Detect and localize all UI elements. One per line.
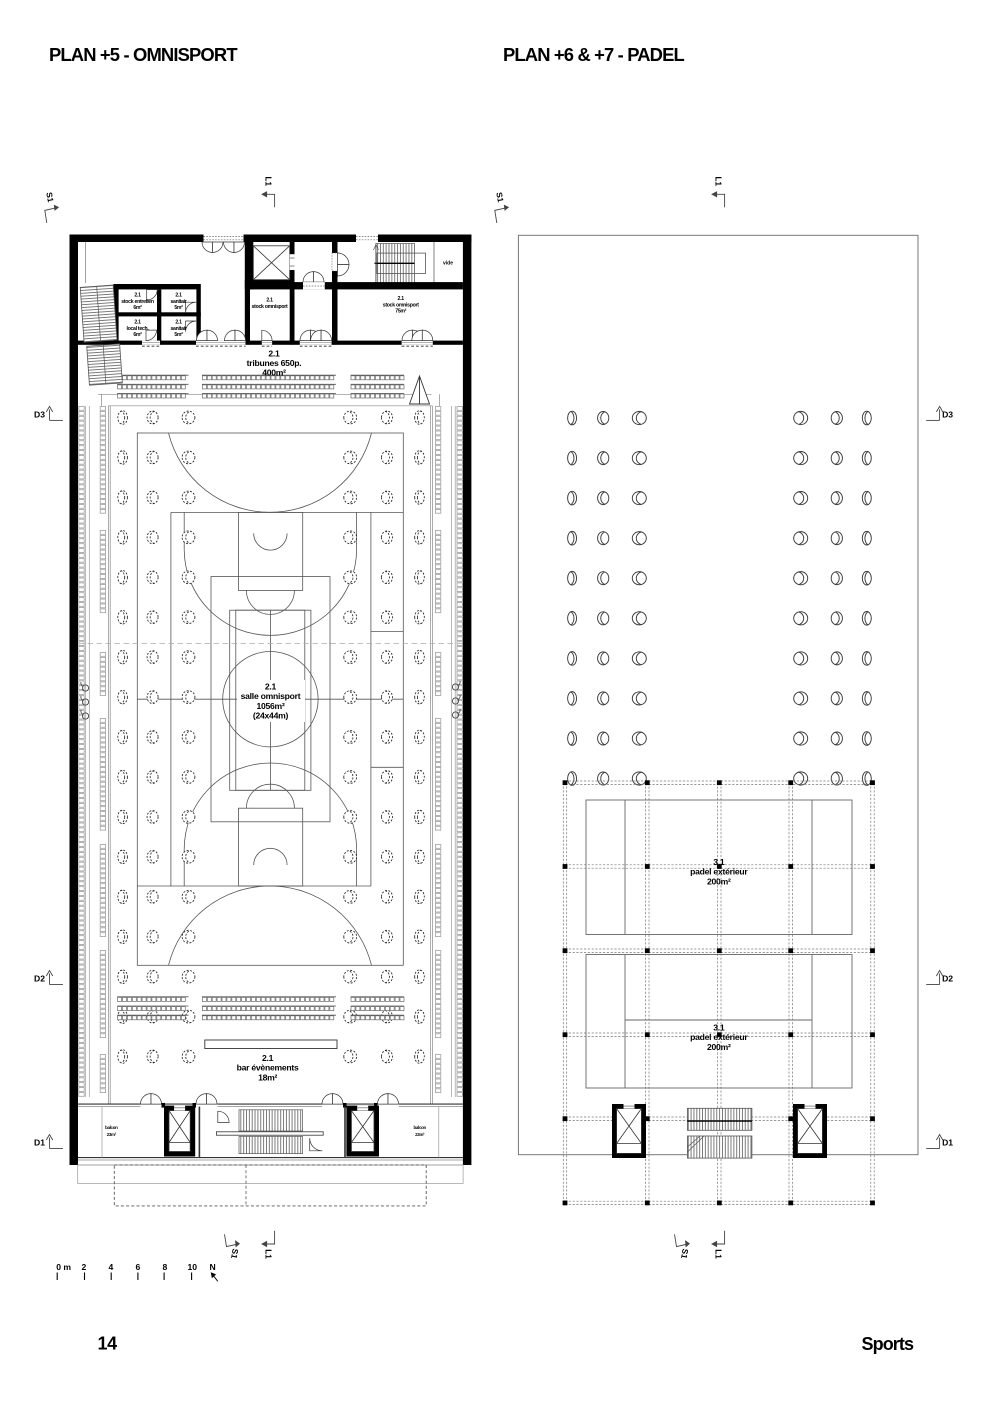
- svg-text:2.1: 2.1: [262, 1053, 274, 1063]
- svg-text:sanitair: sanitair: [170, 299, 186, 305]
- svg-text:balcon: balcon: [105, 1125, 118, 1130]
- svg-text:padel extérieur: padel extérieur: [690, 1032, 748, 1042]
- svg-text:padel extérieur: padel extérieur: [690, 867, 748, 877]
- svg-text:N: N: [210, 1262, 216, 1272]
- svg-text:6: 6: [136, 1262, 141, 1272]
- svg-text:5m²: 5m²: [174, 332, 183, 338]
- svg-text:2.1: 2.1: [175, 293, 182, 299]
- svg-text:sanitair: sanitair: [170, 326, 186, 332]
- svg-text:1056m²: 1056m²: [256, 701, 285, 711]
- svg-text:14: 14: [98, 1334, 118, 1354]
- svg-text:8: 8: [163, 1262, 168, 1272]
- svg-text:PLAN +5 - OMNISPORT: PLAN +5 - OMNISPORT: [49, 44, 238, 65]
- svg-text:D2: D2: [942, 974, 953, 984]
- svg-text:2.1: 2.1: [265, 681, 277, 691]
- svg-text:2.1: 2.1: [268, 349, 280, 359]
- svg-text:18m²: 18m²: [258, 1072, 277, 1082]
- svg-text:23m²: 23m²: [415, 1132, 425, 1137]
- svg-text:D1: D1: [34, 1138, 45, 1148]
- svg-text:L1: L1: [263, 1249, 272, 1259]
- svg-text:3.1: 3.1: [713, 857, 725, 867]
- svg-text:2.1: 2.1: [134, 293, 141, 299]
- svg-text:L1: L1: [713, 177, 722, 187]
- svg-text:vide: vide: [443, 261, 453, 267]
- svg-text:2.1: 2.1: [266, 298, 273, 304]
- svg-text:400m²: 400m²: [262, 368, 286, 378]
- svg-text:4: 4: [109, 1262, 114, 1272]
- svg-text:S1: S1: [229, 1248, 240, 1260]
- svg-text:2.1: 2.1: [175, 320, 182, 326]
- svg-text:(24x44m): (24x44m): [253, 711, 289, 721]
- svg-text:S1: S1: [679, 1248, 690, 1260]
- svg-text:2.1: 2.1: [134, 320, 141, 326]
- svg-text:tribunes 650p.: tribunes 650p.: [247, 358, 302, 368]
- svg-text:salle omnisport: salle omnisport: [241, 691, 301, 701]
- svg-text:stock omnisport: stock omnisport: [252, 304, 288, 310]
- svg-text:2.1: 2.1: [398, 296, 405, 302]
- svg-text:2: 2: [82, 1262, 87, 1272]
- svg-text:6m²: 6m²: [133, 305, 142, 311]
- svg-text:L1: L1: [713, 1249, 722, 1259]
- svg-text:6m²: 6m²: [133, 332, 142, 338]
- svg-text:balcon: balcon: [414, 1125, 427, 1130]
- svg-text:D3: D3: [942, 409, 953, 419]
- svg-text:200m²: 200m²: [707, 876, 731, 886]
- svg-text:stock entretien: stock entretien: [121, 299, 154, 305]
- svg-text:D2: D2: [34, 974, 45, 984]
- svg-text:0 m: 0 m: [56, 1262, 71, 1272]
- svg-text:Sports: Sports: [862, 1334, 914, 1354]
- svg-text:D3: D3: [34, 409, 45, 419]
- svg-text:L1: L1: [263, 177, 272, 187]
- svg-text:local tech.: local tech.: [126, 326, 149, 332]
- svg-text:23m²: 23m²: [107, 1132, 117, 1137]
- svg-text:S1: S1: [494, 192, 505, 204]
- svg-text:200m²: 200m²: [707, 1042, 731, 1052]
- svg-text:5m²: 5m²: [174, 305, 183, 311]
- svg-text:PLAN +6 & +7 - PADEL: PLAN +6 & +7 - PADEL: [503, 44, 685, 65]
- svg-text:3.1: 3.1: [713, 1022, 725, 1032]
- svg-text:S1: S1: [44, 192, 55, 204]
- svg-text:10: 10: [188, 1262, 198, 1272]
- svg-text:bar évènements: bar évènements: [237, 1063, 299, 1073]
- svg-text:stock omnisport: stock omnisport: [383, 302, 419, 308]
- svg-text:D1: D1: [942, 1138, 953, 1148]
- svg-text:75m²: 75m²: [395, 309, 406, 315]
